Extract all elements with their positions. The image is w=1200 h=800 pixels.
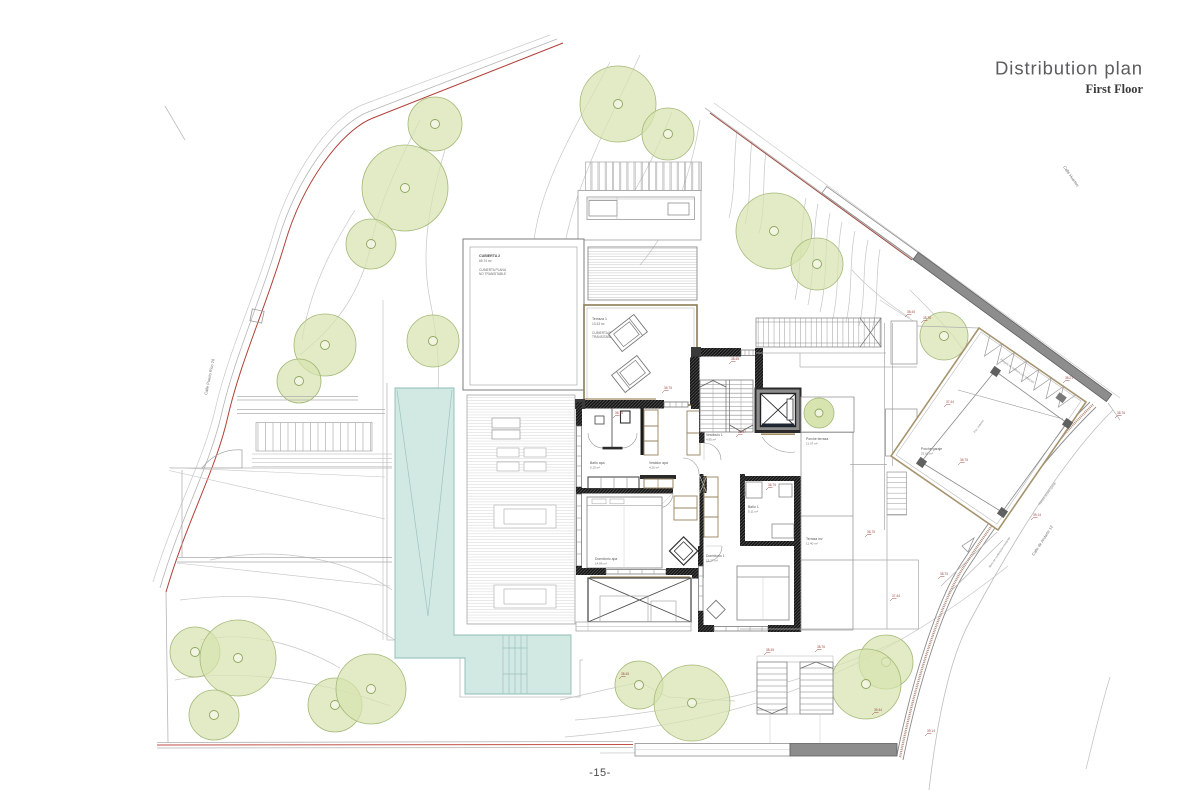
- svg-text:38.45: 38.45: [907, 310, 915, 314]
- svg-text:38.75: 38.75: [940, 572, 948, 576]
- svg-text:36.75: 36.75: [615, 411, 623, 415]
- svg-text:22.51 m²: 22.51 m²: [921, 452, 933, 456]
- svg-text:CUBIERTA 2: CUBIERTA 2: [479, 254, 500, 258]
- svg-text:5.11 m²: 5.11 m²: [748, 510, 758, 514]
- svg-text:39.14: 39.14: [1033, 513, 1041, 517]
- svg-text:38.76: 38.76: [1117, 411, 1125, 415]
- svg-text:38.76: 38.76: [817, 645, 825, 649]
- svg-text:36.75: 36.75: [867, 530, 875, 534]
- svg-text:65.74 m²: 65.74 m²: [479, 259, 492, 263]
- svg-text:Porche garaje: Porche garaje: [921, 447, 942, 451]
- svg-text:Terraza 1: Terraza 1: [592, 317, 607, 321]
- svg-text:39.14: 39.14: [927, 729, 935, 733]
- svg-text:36.75: 36.75: [768, 483, 776, 487]
- svg-text:4.25 m²: 4.25 m²: [649, 466, 659, 470]
- svg-text:Dormitorio apa: Dormitorio apa: [595, 557, 617, 561]
- svg-text:36.75: 36.75: [664, 386, 672, 390]
- svg-text:Vestíbulo 1: Vestíbulo 1: [706, 433, 723, 437]
- svg-text:4.95 m²: 4.95 m²: [706, 438, 716, 442]
- svg-text:38.45: 38.45: [621, 672, 629, 676]
- svg-text:Porche terraza: Porche terraza: [806, 437, 828, 441]
- svg-text:38.45: 38.45: [766, 648, 774, 652]
- svg-text:11.07 m²: 11.07 m²: [806, 442, 818, 446]
- svg-text:36.75: 36.75: [960, 458, 968, 462]
- svg-text:5.15 m²: 5.15 m²: [590, 466, 600, 470]
- svg-text:39.44: 39.44: [874, 708, 882, 712]
- svg-text:13.27 m²: 13.27 m²: [706, 559, 718, 563]
- svg-text:Baño 1: Baño 1: [748, 505, 759, 509]
- svg-text:NO TRANSITABLE: NO TRANSITABLE: [479, 272, 506, 276]
- svg-text:11.40 m²: 11.40 m²: [806, 542, 818, 546]
- svg-text:36.47: 36.47: [738, 430, 746, 434]
- svg-text:14.86 m²: 14.86 m²: [595, 562, 607, 566]
- svg-text:Vestidor apa: Vestidor apa: [649, 461, 668, 465]
- svg-text:37.44: 37.44: [892, 594, 900, 598]
- svg-text:38.45: 38.45: [731, 357, 739, 361]
- svg-text:38.76: 38.76: [923, 316, 931, 320]
- svg-text:Dormitorio 1: Dormitorio 1: [706, 554, 725, 558]
- svg-text:38.21: 38.21: [1065, 376, 1073, 380]
- svg-text:-15-: -15-: [589, 767, 611, 779]
- svg-text:37.44: 37.44: [946, 400, 954, 404]
- svg-text:Distribution plan: Distribution plan: [995, 58, 1143, 79]
- svg-text:Terraza inv: Terraza inv: [806, 537, 823, 541]
- svg-text:13.43 m²: 13.43 m²: [592, 322, 605, 326]
- svg-text:First Floor: First Floor: [1086, 82, 1144, 96]
- svg-text:Baño apa: Baño apa: [590, 461, 605, 465]
